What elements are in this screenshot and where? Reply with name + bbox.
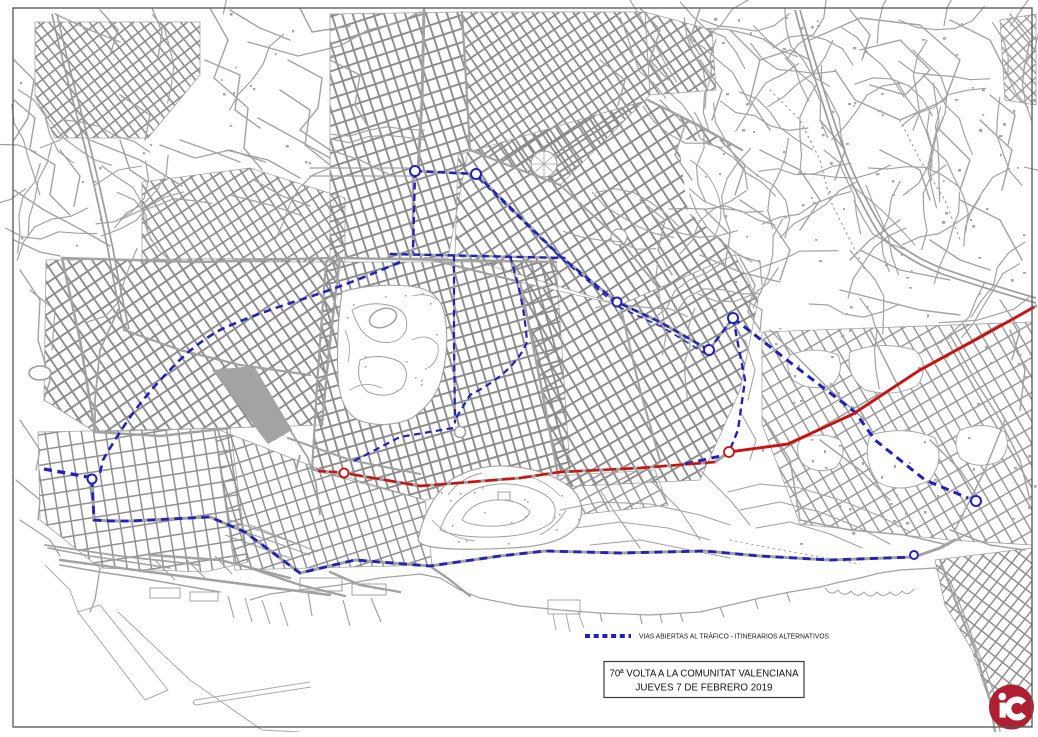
svg-text:JUEVES 7 DE FEBRERO 2019: JUEVES 7 DE FEBRERO 2019 bbox=[636, 682, 773, 694]
svg-text:70ª VOLTA A LA COMUNITAT VALEN: 70ª VOLTA A LA COMUNITAT VALENCIANA bbox=[610, 668, 799, 680]
svg-text:VIAS ABIERTAS AL TRÁFICO - ITI: VIAS ABIERTAS AL TRÁFICO - ITINERARIOS A… bbox=[639, 632, 829, 641]
